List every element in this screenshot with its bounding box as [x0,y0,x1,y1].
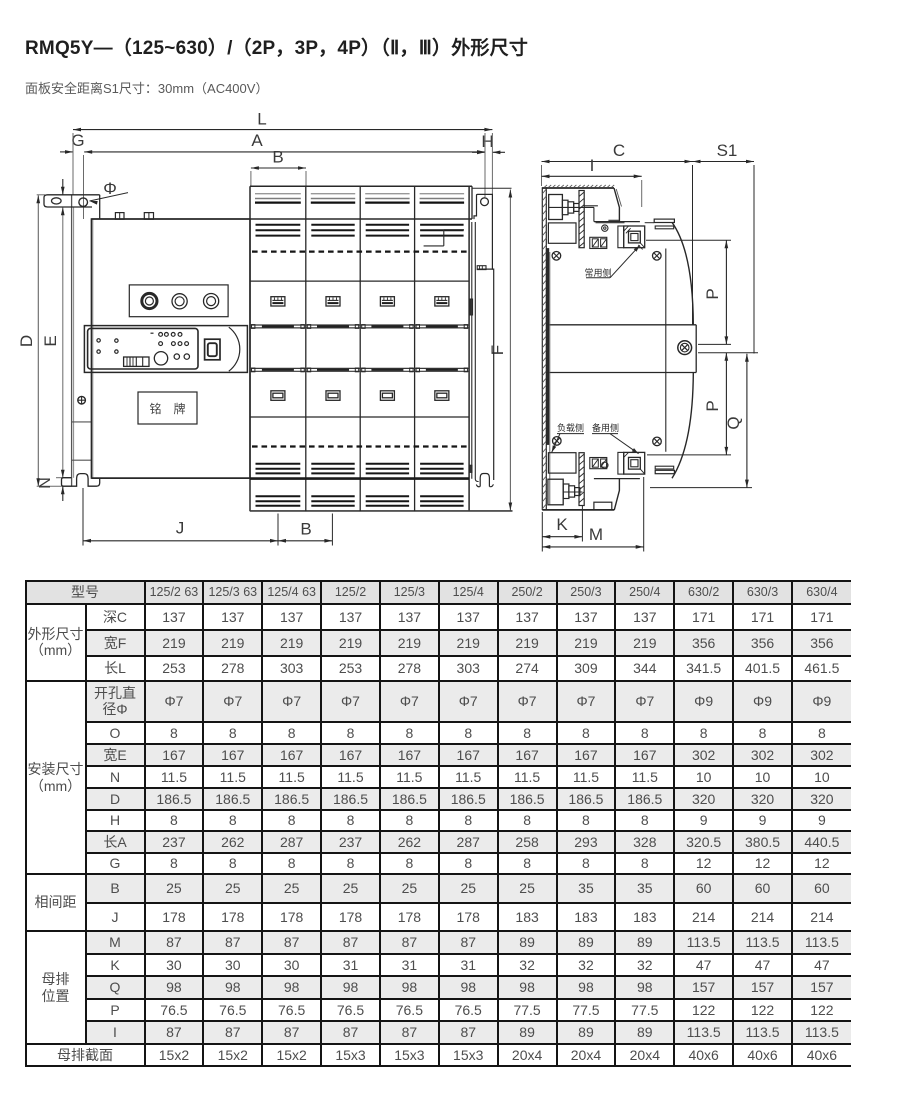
svg-text:P: P [703,288,722,299]
svg-text:J: J [176,519,185,538]
svg-text:铭 牌: 铭 牌 [149,401,185,416]
svg-text:P: P [703,400,722,411]
svg-text:Q: Q [724,416,743,429]
svg-text:I: I [590,156,595,175]
svg-text:常用侧: 常用侧 [584,267,611,278]
svg-text:E: E [41,335,60,346]
svg-text:S1: S1 [717,141,738,160]
svg-text:L: L [257,110,266,129]
svg-text:B: B [272,148,283,167]
svg-text:D: D [17,335,36,347]
svg-text:B: B [300,520,311,539]
svg-text:A: A [251,131,263,150]
svg-text:F: F [488,345,507,355]
svg-text:负载侧: 负载侧 [557,422,584,433]
svg-text:H: H [481,132,493,151]
svg-text:备用侧: 备用侧 [592,422,619,433]
svg-text:K: K [556,515,568,534]
svg-text:N: N [37,477,54,489]
svg-text:M: M [589,525,603,544]
svg-text:C: C [613,141,625,160]
